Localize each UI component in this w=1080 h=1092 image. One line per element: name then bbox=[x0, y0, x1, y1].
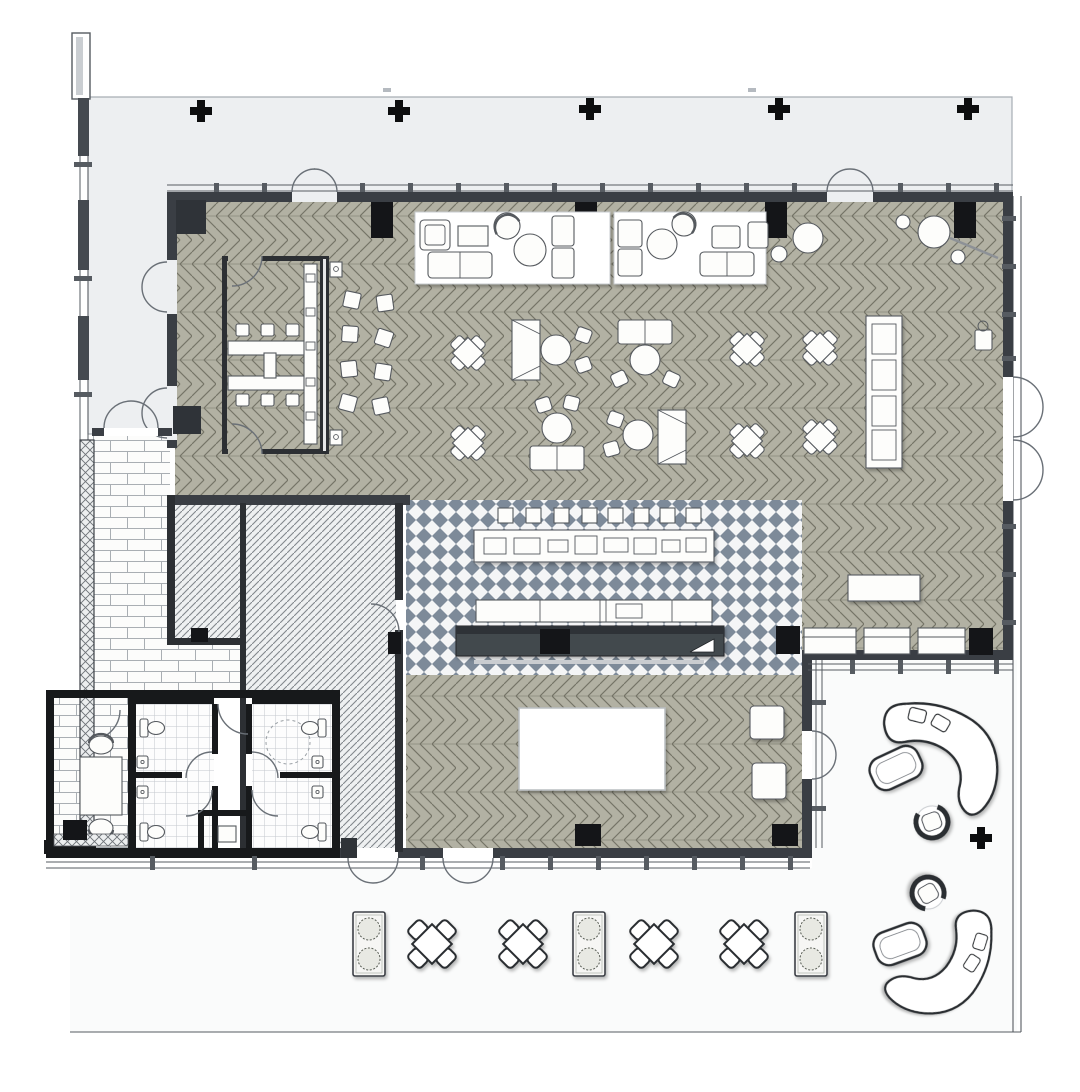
stage-platform bbox=[519, 708, 665, 790]
sink-icon bbox=[312, 756, 323, 768]
bar-back-counter bbox=[474, 530, 714, 562]
mop-sink bbox=[218, 826, 236, 842]
vestibule-brick-floor bbox=[167, 645, 242, 692]
square-side-table bbox=[750, 706, 784, 739]
floor-plan bbox=[0, 0, 1080, 1092]
column bbox=[191, 628, 208, 642]
column bbox=[388, 632, 401, 654]
bar-footrest bbox=[474, 660, 704, 664]
hall-kitchen-wall bbox=[167, 495, 410, 505]
banquette-table bbox=[848, 575, 920, 601]
south-windows bbox=[340, 856, 810, 870]
vestibule-brick-floor bbox=[92, 436, 170, 692]
sink-icon bbox=[137, 756, 148, 768]
banquette-bench bbox=[864, 628, 910, 654]
bar-mid-counter bbox=[476, 600, 712, 622]
banquette-bench bbox=[918, 628, 965, 654]
sink-icon bbox=[137, 786, 148, 798]
sink-icon bbox=[312, 786, 323, 798]
kitchen-room-a-floor bbox=[172, 505, 242, 641]
floor-plan-drawing bbox=[0, 0, 1080, 1092]
buffet-icon bbox=[866, 316, 902, 468]
south-wall bbox=[340, 848, 810, 858]
planter-icon bbox=[573, 912, 605, 976]
double-door-icon bbox=[1003, 377, 1043, 501]
square-side-table bbox=[752, 763, 786, 799]
credenza bbox=[304, 264, 317, 444]
planter-icon bbox=[353, 912, 385, 976]
banquette-bench bbox=[804, 628, 856, 654]
column bbox=[63, 820, 87, 840]
planter-icon bbox=[795, 912, 827, 976]
